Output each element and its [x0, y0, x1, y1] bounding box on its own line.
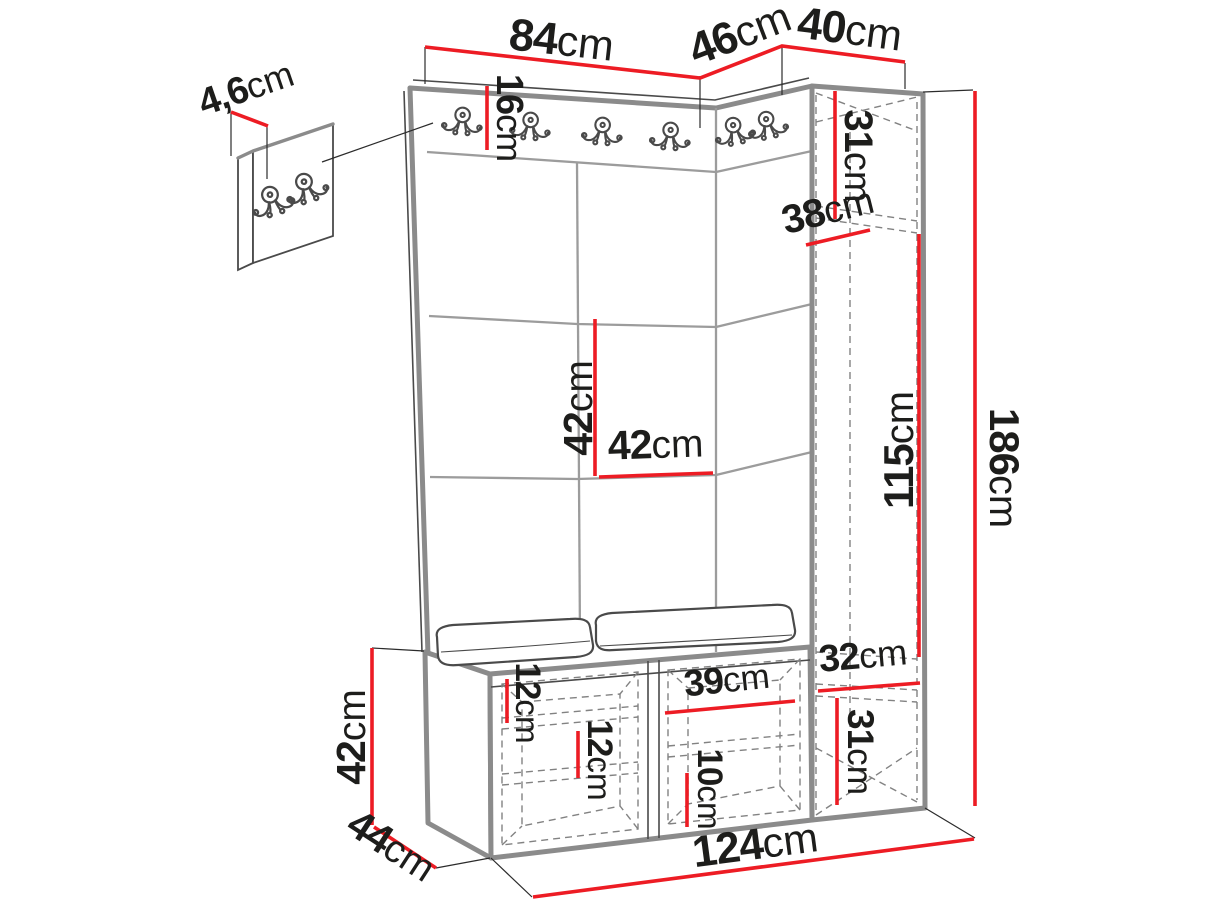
- panel-face: [410, 86, 812, 660]
- furniture-dimension-diagram: 84cm 46cm 40cm 4,6cm 16cm 31cm 38cm 42cm…: [0, 0, 1214, 911]
- cushion-left: [437, 619, 593, 665]
- label-rail-height: 16cm: [488, 74, 530, 162]
- guide-floor-left: [491, 858, 532, 897]
- label-bench-bottom-gap: 10cm: [690, 748, 729, 829]
- label-bench-lower-shelf: 12cm: [580, 719, 619, 800]
- label-top-main-width: 84cm: [507, 8, 617, 70]
- label-tile-height: 42cm: [555, 360, 601, 456]
- label-hook-panel-thickness: 4,6cm: [193, 53, 299, 125]
- label-bench-upper-shelf: 12cm: [508, 662, 547, 743]
- guide-44-to-bench: [436, 858, 490, 868]
- cushion-right: [596, 605, 795, 650]
- diagram-canvas: 84cm 46cm 40cm 4,6cm 16cm 31cm 38cm 42cm…: [0, 0, 1214, 911]
- guide-42-bench-top: [372, 648, 424, 651]
- label-bench-height: 42cm: [328, 689, 374, 785]
- hook-panel-side: [238, 151, 253, 270]
- guide-186-top: [923, 90, 973, 92]
- label-tile-width: 42cm: [607, 419, 704, 468]
- label-total-height: 186cm: [981, 408, 1028, 528]
- panel-wall: [404, 78, 812, 660]
- guide-floor-right: [925, 808, 975, 838]
- label-cabinet-bottom-niche: 31cm: [840, 709, 881, 795]
- label-wardrobe-inner-height: 115cm: [875, 391, 922, 509]
